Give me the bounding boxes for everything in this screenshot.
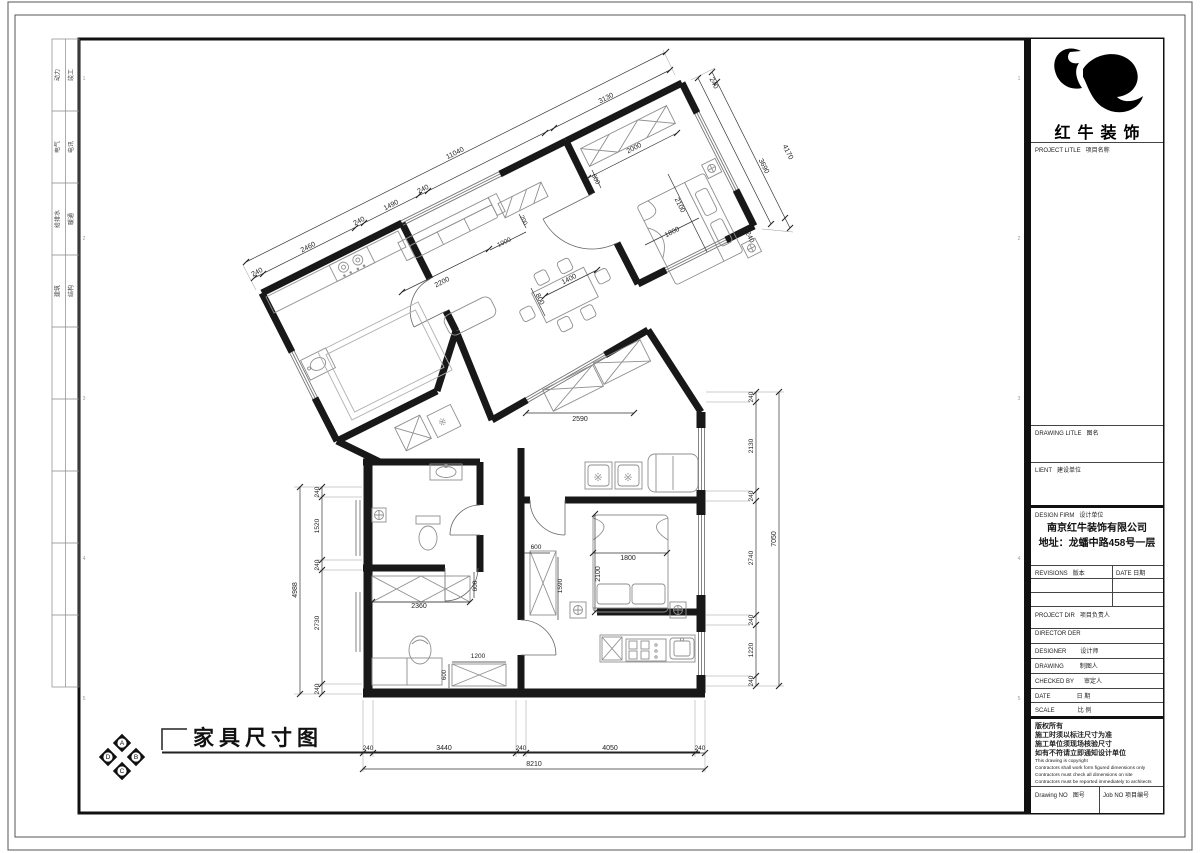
svg-text:240: 240 [314, 559, 321, 570]
svg-text:动力: 动力 [54, 69, 62, 81]
svg-text:600: 600 [531, 544, 542, 551]
svg-text:240: 240 [744, 231, 756, 245]
compass-symbol: ABCD [99, 734, 145, 780]
svg-text:240: 240 [748, 490, 755, 501]
svg-text:※: ※ [437, 416, 449, 430]
svg-text:2200: 2200 [434, 276, 451, 289]
svg-text:200: 200 [518, 215, 528, 227]
svg-text:结构: 结构 [67, 285, 75, 297]
svg-text:2130: 2130 [748, 438, 755, 453]
svg-text:2740: 2740 [748, 550, 755, 565]
study-furniture [372, 576, 506, 686]
pillow-2 [632, 584, 665, 604]
svg-text:建筑: 建筑 [54, 285, 62, 297]
svg-text:2: 2 [1018, 236, 1021, 242]
fridge [395, 415, 432, 451]
copyright-notes: 版权所有 施工时须以标注尺寸为准 施工单位须现场核验尺寸 如有不符请立即通知设计… [1035, 722, 1159, 786]
svg-text:1800: 1800 [664, 226, 681, 239]
svg-text:5: 5 [83, 696, 86, 702]
scale-label: SCALE比 例 [1035, 705, 1091, 714]
svg-text:11040: 11040 [445, 146, 465, 161]
brand-name: 红牛装饰 [1031, 119, 1163, 143]
svg-text:600: 600 [442, 669, 448, 680]
svg-text:240: 240 [748, 614, 755, 625]
outer-frame [8, 2, 1192, 850]
toilet-bowl [419, 526, 437, 550]
svg-text:7050: 7050 [771, 531, 778, 547]
svg-text:1000: 1000 [496, 236, 512, 249]
svg-text:4170: 4170 [781, 144, 794, 161]
discipline-strip [52, 39, 79, 687]
svg-text:1220: 1220 [748, 642, 755, 657]
project-dir-label: PROJECT DIR项目负责人 [1035, 610, 1110, 619]
svg-text:240: 240 [748, 675, 755, 686]
svg-text:2730: 2730 [314, 615, 321, 630]
svg-text:※: ※ [623, 472, 632, 484]
svg-text:240: 240 [748, 391, 755, 402]
drawing-title-label: DRAWING LITLE图名 [1035, 428, 1098, 437]
svg-text:1490: 1490 [383, 199, 400, 212]
svg-text:1: 1 [83, 76, 86, 82]
bathroom-fixtures [372, 464, 462, 550]
svg-text:电气: 电气 [54, 141, 62, 153]
svg-text:240: 240 [708, 77, 720, 91]
title-block: 红牛装饰 PROJECT LITLE项目名称 DRAWING LITLE图名 L… [1031, 39, 1163, 813]
svg-text:1590: 1590 [557, 578, 564, 593]
master-wardrobe [581, 106, 676, 167]
utility-counter [600, 635, 695, 662]
study-wardrobe [372, 576, 470, 602]
bathroom-door [450, 505, 480, 535]
toilet-tank [416, 516, 440, 524]
floor-plan-canvas: 动力竣工电气电讯给排水暖通建筑结构 [0, 0, 1200, 853]
svg-text:240: 240 [695, 745, 706, 752]
titleblock-divider-bar [1024, 39, 1031, 813]
svg-text:600: 600 [472, 580, 479, 591]
svg-text:竣工: 竣工 [67, 69, 75, 81]
windows [290, 112, 738, 675]
svg-text:1400: 1400 [561, 273, 578, 286]
svg-text:4: 4 [83, 556, 86, 562]
svg-text:2590: 2590 [572, 416, 588, 423]
designer-label: DESIGNER设计师 [1035, 646, 1098, 655]
svg-text:暖通: 暖通 [67, 213, 75, 225]
svg-text:2360: 2360 [411, 603, 427, 610]
svg-text:电讯: 电讯 [67, 141, 75, 153]
pillow-1 [597, 584, 630, 604]
svg-text:800: 800 [534, 293, 546, 307]
svg-text:4988: 4988 [292, 582, 299, 598]
svg-text:3: 3 [83, 396, 86, 402]
svg-text:D: D [106, 754, 111, 761]
svg-text:240: 240 [516, 745, 527, 752]
svg-text:3690: 3690 [757, 158, 770, 175]
drawing-by-label: DRAWING制图人 [1035, 661, 1098, 670]
svg-text:3: 3 [1018, 396, 1021, 402]
utility-door [521, 620, 556, 655]
plan-dimension-labels: 2402460240149024031301104024036904170240… [83, 76, 1021, 768]
master-bedroom-door [543, 194, 617, 249]
job-no-label: Job NO 项目编号 [1103, 790, 1149, 799]
svg-text:2100: 2100 [673, 197, 686, 214]
svg-text:4050: 4050 [602, 745, 618, 752]
drawing-sheet: 动力竣工电气电讯给排水暖通建筑结构 [0, 0, 1200, 853]
bull-icon [1054, 48, 1143, 112]
master-bed [637, 173, 743, 285]
director-label: DIRECTOR DER [1035, 631, 1086, 637]
project-title-label: PROJECT LITLE项目名称 [1035, 145, 1110, 154]
svg-text:2: 2 [83, 236, 86, 242]
bedroom2-furniture [530, 454, 698, 618]
svg-text:5: 5 [1018, 696, 1021, 702]
svg-text:1520: 1520 [314, 518, 321, 533]
svg-text:3440: 3440 [436, 745, 452, 752]
svg-text:2000: 2000 [626, 142, 643, 155]
hall-closet-1 [543, 365, 604, 412]
master-nightstands [702, 158, 762, 258]
date-label: DATE日 期 [1035, 691, 1090, 700]
svg-text:A: A [120, 740, 125, 747]
svg-text:C: C [120, 768, 125, 775]
rev-date-label: DATE 日期 [1116, 568, 1145, 577]
client-label: LIENT建设单位 [1035, 465, 1081, 474]
drawing-no-label: Drawing NO图号 [1035, 790, 1085, 799]
design-firm-label: DESIGN FIRM设计单位 [1035, 510, 1103, 519]
dining-table [507, 244, 623, 346]
svg-text:240: 240 [363, 745, 374, 752]
svg-text:B: B [134, 754, 138, 761]
svg-text:给排水: 给排水 [54, 210, 62, 228]
checked-by-label: CHECKED BY审定人 [1035, 676, 1102, 685]
svg-text:3130: 3130 [598, 92, 615, 105]
svg-text:240: 240 [314, 486, 321, 497]
svg-text:※: ※ [593, 472, 602, 484]
kitchen-island [318, 302, 452, 420]
svg-text:1800: 1800 [620, 555, 636, 562]
bedroom2-door [530, 500, 565, 535]
svg-text:8210: 8210 [526, 761, 542, 768]
stove [626, 639, 666, 661]
tv-cabinet [498, 182, 548, 218]
svg-text:1: 1 [1018, 76, 1021, 82]
svg-text:240: 240 [314, 683, 321, 694]
company-info: 南京红牛装饰有限公司 地址：龙蟠中路458号一层 [1031, 521, 1163, 551]
svg-text:2100: 2100 [595, 566, 602, 582]
svg-text:4: 4 [1018, 556, 1021, 562]
drawing-title: 家具尺寸图 [193, 722, 323, 752]
brand-logo [1045, 43, 1149, 117]
revisions-label: REVISIONS版本 [1035, 568, 1085, 577]
svg-text:2460: 2460 [300, 241, 317, 254]
svg-text:1200: 1200 [471, 653, 486, 660]
